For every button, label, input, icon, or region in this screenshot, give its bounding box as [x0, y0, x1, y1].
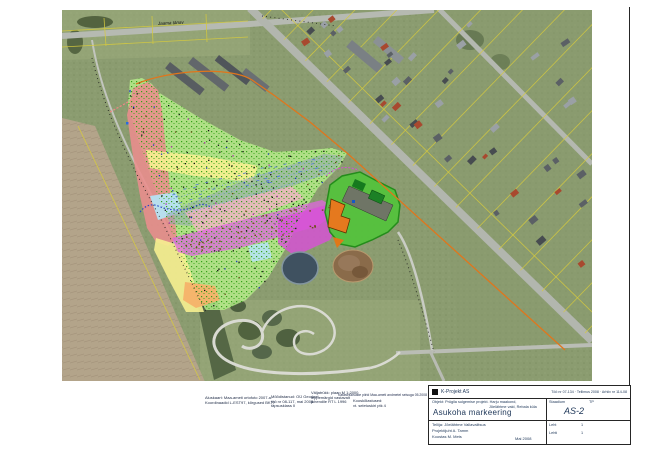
pond: [282, 252, 318, 284]
map-note-1: Aluskaart: Maa-ameti ortofoto 2007.a.Koo…: [205, 396, 275, 405]
title-block: K-Projekt AS Töö nr 07-134 · Tellimus 20…: [428, 385, 631, 445]
tb-object-line1: Objekt: Prügila sulgemise projekt. Harju…: [432, 400, 516, 404]
tb-author: Koostas M. Mets: [432, 434, 462, 439]
tb-date: Mai 2008: [515, 436, 531, 441]
company-logo: [432, 389, 438, 395]
tb-sheet-label: Leht: [549, 423, 556, 427]
drawing-number: AS-2: [564, 406, 584, 416]
tb-sheets-value: 1: [581, 431, 583, 435]
tb-sheet-value: 1: [581, 423, 583, 427]
map-note-3b: Katastriüksuste piirid Maa-ameti andmete…: [338, 393, 427, 397]
blue-symbol: [352, 200, 355, 203]
drawing-title: Asukoha markeering: [433, 408, 512, 417]
drawing-sheet: Jaama tänav Aluskaart: Maa-ameti ortofot…: [0, 0, 650, 459]
tb-pm: Projektijuht A. Tamm: [432, 428, 468, 433]
tb-stage-label: Staadium: [549, 400, 565, 404]
tb-client: Tellija: Jõelähtme Vallavalitsus: [432, 422, 486, 427]
tb-stage-value: TP: [589, 400, 594, 404]
tb-sheets-label: Lehti: [549, 431, 557, 435]
blue-survey-marker: [126, 122, 129, 125]
map-note-4: Kooskõlastused:vt. seletuskiri ptk 4: [353, 399, 386, 408]
tb-job-info: Töö nr 07-134 · Tellimus 2008 · Arhiiv n…: [551, 390, 627, 394]
sheet-frame-line: [629, 7, 630, 443]
company-name: K-Projekt AS: [441, 389, 469, 395]
